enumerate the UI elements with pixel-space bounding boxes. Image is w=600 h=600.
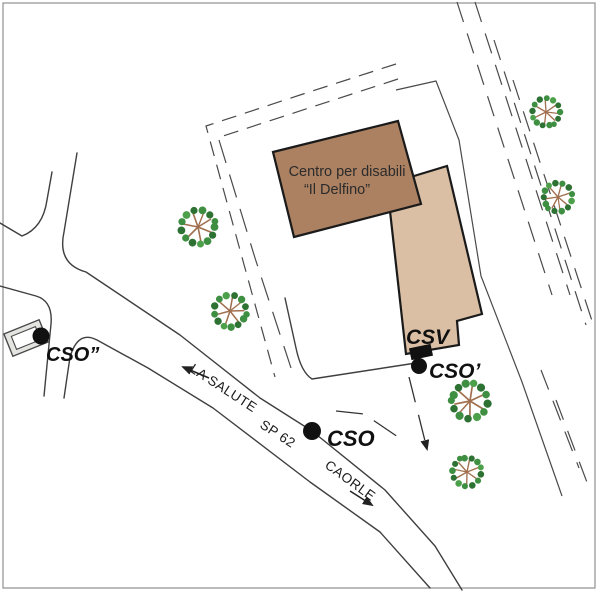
east-dashed-lane-group [457,2,595,485]
access-path-line [285,298,416,379]
tree-icon [178,207,219,248]
east-dashed-lane [475,2,570,295]
csv-label: CSV [406,326,451,349]
main-building-label-line2: “Il Delfino” [304,182,370,198]
cso-stop-dot [303,422,321,440]
road-branch-left-upper-edge [0,172,52,236]
cso-doubleprime-stop-dot [33,328,50,345]
east-dashed-lane [556,400,588,485]
main-building-label-line1: Centro per disabili [289,164,406,180]
tree-icon [203,284,256,337]
cso-prime-label: CSO’ [429,360,482,383]
east-dashed-lane [494,40,586,325]
cso-prime-stop-dot [411,358,427,374]
cso-doubleprime-label: CSO” [46,344,99,366]
buildings [273,121,482,354]
road-sp62-lower-edge [64,337,430,588]
tree-icon [447,452,487,492]
tree-icon [534,173,582,221]
site-map: Centro per disabili “Il Delfino” LA SALU… [0,0,600,600]
cso-label: CSO [327,426,375,451]
path-from-cso-prime-dashed [409,377,427,449]
east-dashed-lane [457,2,552,295]
tree-icon [525,91,566,132]
site-map-svg: Centro per disabili “Il Delfino” LA SALU… [0,0,600,600]
image-border [3,3,595,588]
